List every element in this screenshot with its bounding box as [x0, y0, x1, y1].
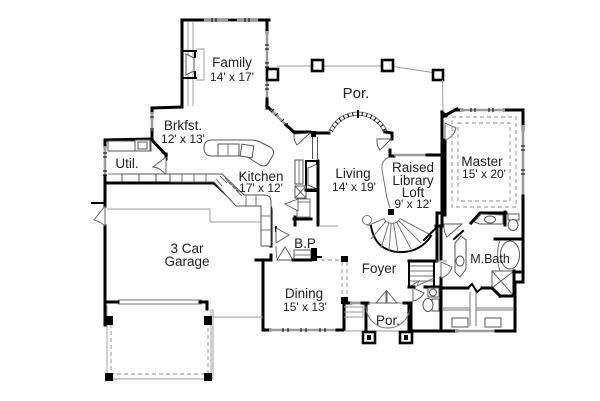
svg-text:9' x 12': 9' x 12': [394, 197, 431, 211]
svg-text:Por.: Por.: [376, 313, 400, 328]
svg-text:15' x 13': 15' x 13': [283, 300, 327, 314]
svg-text:12' x 13': 12' x 13': [161, 132, 205, 146]
svg-text:Brkfst.: Brkfst.: [164, 118, 202, 133]
svg-text:Util.: Util.: [115, 156, 138, 171]
svg-text:15' x 20': 15' x 20': [462, 167, 506, 181]
svg-text:Living: Living: [335, 166, 370, 181]
svg-text:17' x 12': 17' x 12': [239, 181, 283, 195]
svg-text:14' x 19': 14' x 19': [332, 180, 376, 194]
svg-text:Por.: Por.: [343, 85, 370, 102]
svg-text:Foyer: Foyer: [362, 261, 397, 276]
svg-text:14' x 17': 14' x 17': [210, 70, 254, 84]
svg-text:Family: Family: [212, 55, 252, 70]
svg-text:Garage: Garage: [164, 254, 209, 269]
svg-text:M.Bath: M.Bath: [470, 252, 510, 266]
svg-text:Dining: Dining: [285, 286, 323, 301]
